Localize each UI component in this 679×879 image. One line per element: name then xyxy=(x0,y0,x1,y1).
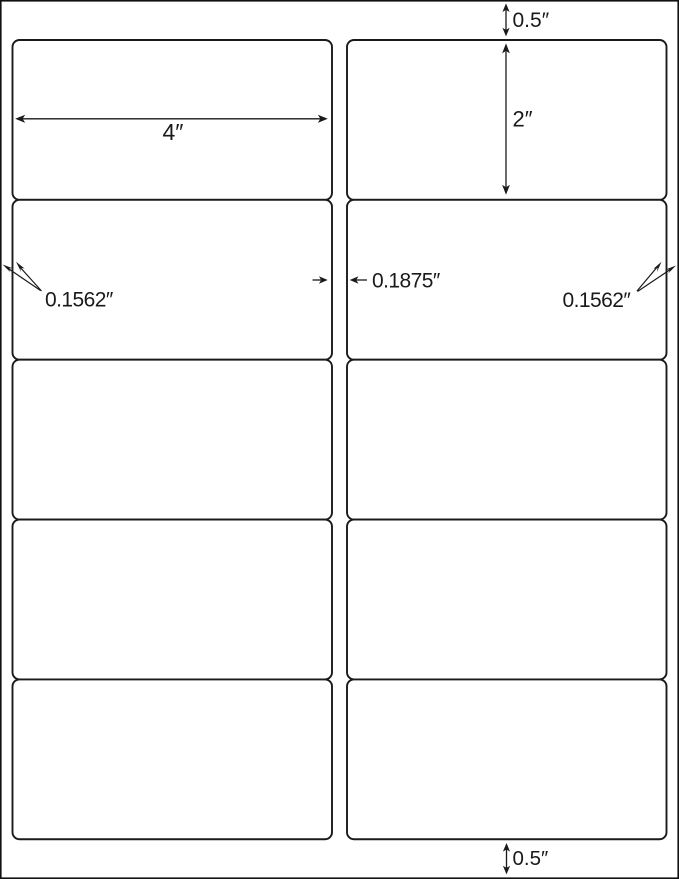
svg-text:0.1562″: 0.1562″ xyxy=(563,289,632,312)
svg-text:0.5″: 0.5″ xyxy=(513,847,549,870)
svg-text:0.1562″: 0.1562″ xyxy=(45,289,114,312)
svg-text:0.1875″: 0.1875″ xyxy=(372,270,441,293)
svg-text:2″: 2″ xyxy=(513,107,533,132)
svg-text:0.5″: 0.5″ xyxy=(513,9,550,32)
svg-text:4″: 4″ xyxy=(163,119,184,145)
